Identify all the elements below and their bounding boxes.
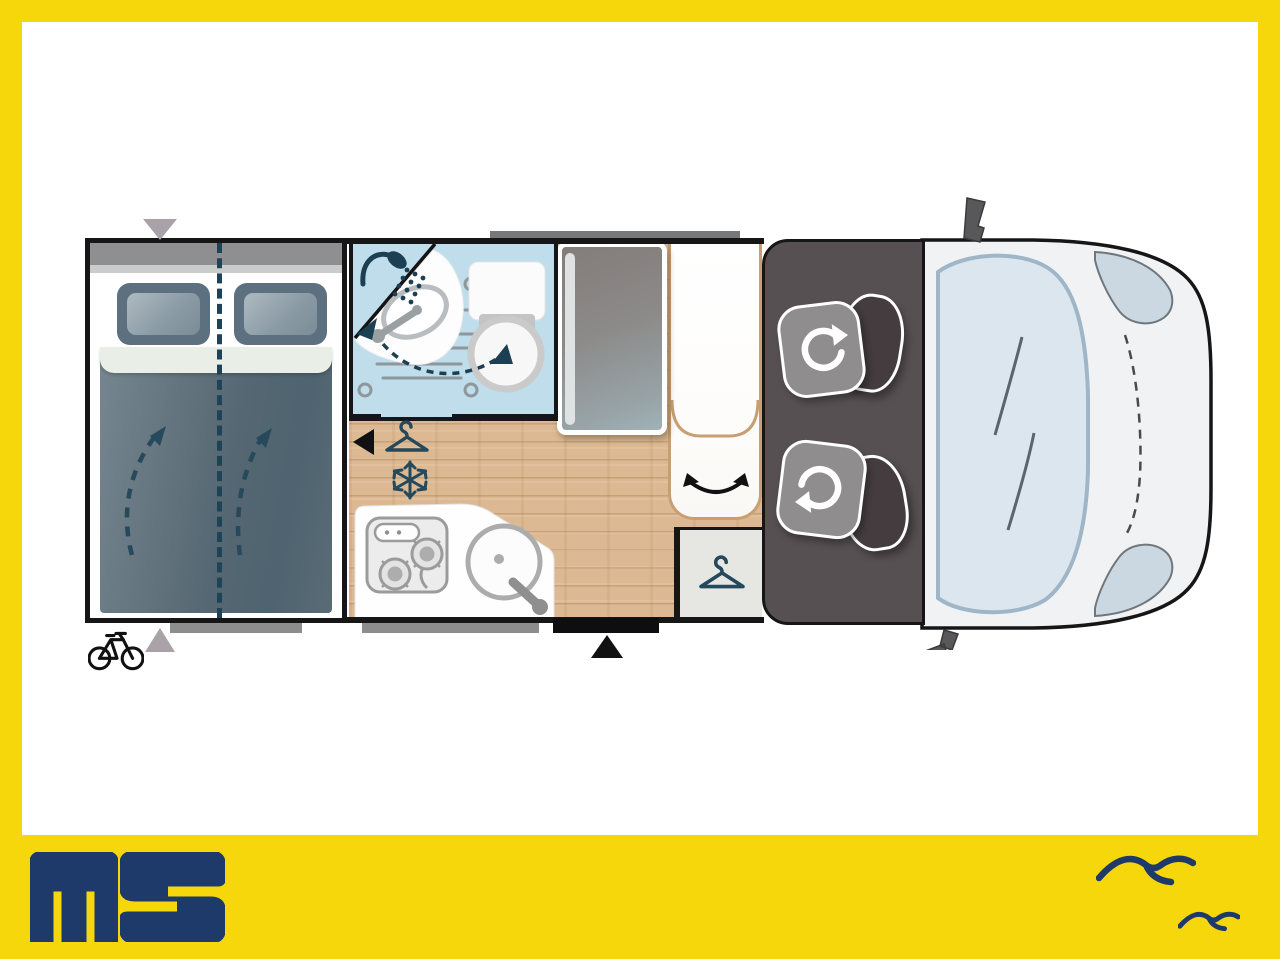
footer-banner: GmbH REISEMOBILE Mobile Freizeit genieße… bbox=[0, 835, 1280, 959]
toilet-tank bbox=[469, 262, 545, 320]
bathroom-wall bbox=[349, 414, 381, 420]
entry-marker-icon bbox=[353, 429, 374, 455]
bedroom bbox=[85, 238, 347, 623]
bird-icon bbox=[1178, 906, 1240, 934]
vehicle-front bbox=[900, 190, 1215, 650]
bicycle-icon bbox=[88, 626, 144, 672]
table-seam bbox=[671, 390, 765, 450]
side-mirror-icon bbox=[912, 630, 958, 650]
wardrobe bbox=[674, 527, 762, 620]
bathroom bbox=[349, 238, 558, 421]
windshield bbox=[938, 256, 1088, 613]
entry-arrow-icon bbox=[591, 635, 623, 658]
logo-letter-m bbox=[30, 852, 118, 942]
logo-letter-s bbox=[120, 852, 225, 942]
storage-flap bbox=[362, 623, 539, 633]
seat-swivel-icon bbox=[795, 463, 847, 515]
hanger-icon bbox=[696, 554, 748, 596]
dinette-bench bbox=[557, 242, 667, 435]
seat-swivel-icon bbox=[796, 322, 848, 374]
bird-icon bbox=[1096, 848, 1196, 888]
cab-area bbox=[762, 239, 925, 625]
bench-backrest-bar bbox=[565, 253, 575, 425]
bed-extension-arrows bbox=[90, 243, 342, 618]
table-unit bbox=[668, 240, 762, 520]
top-wall bbox=[347, 238, 764, 244]
snowflake-icon bbox=[390, 460, 430, 500]
bathroom-wall bbox=[452, 414, 558, 420]
motorhome-floorplan-advert: GmbH REISEMOBILE Mobile Freizeit genieße… bbox=[0, 0, 1280, 959]
storage-flap bbox=[170, 623, 302, 633]
hanger-icon bbox=[383, 419, 431, 459]
kitchen bbox=[353, 500, 558, 618]
bathroom-fixtures bbox=[353, 242, 554, 417]
rear-marker-icon bbox=[143, 219, 177, 240]
stove-icon bbox=[367, 518, 447, 592]
side-mirror-icon bbox=[964, 198, 985, 242]
garage-marker-icon bbox=[145, 628, 175, 652]
floorplan bbox=[0, 0, 1280, 959]
entry-step bbox=[553, 618, 659, 633]
table-swivel-icon bbox=[682, 473, 750, 503]
shower-icon bbox=[363, 248, 426, 305]
